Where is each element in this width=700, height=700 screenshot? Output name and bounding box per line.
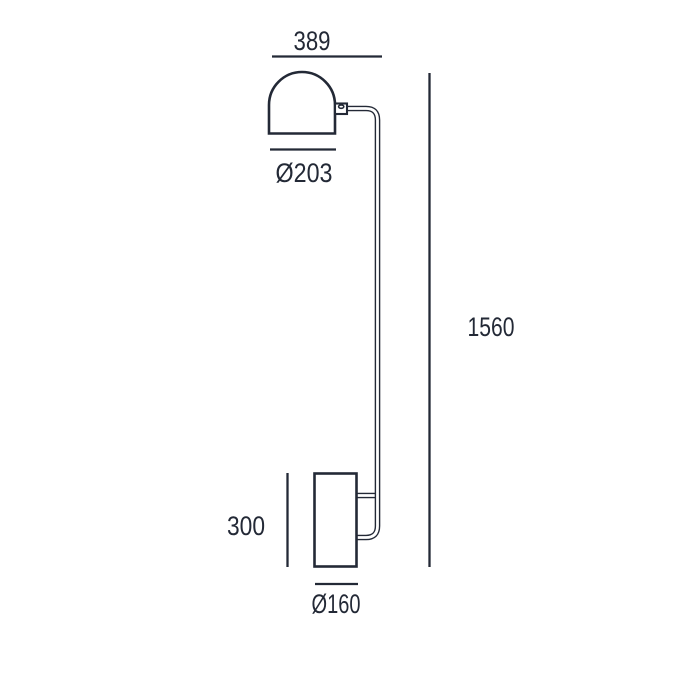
label-base-height: 300	[227, 511, 265, 541]
dimension-diagram: 389 Ø203 1560 300 Ø160	[0, 0, 700, 700]
lamp-shade	[269, 72, 335, 134]
label-base-diameter: Ø160	[312, 589, 361, 619]
label-shade-diameter: Ø203	[276, 158, 333, 188]
label-top-width: 389	[294, 26, 331, 56]
lamp-artwork	[269, 72, 378, 567]
label-total-height: 1560	[468, 312, 515, 342]
floor-lamp-drawing: 389 Ø203 1560 300 Ø160	[0, 0, 700, 700]
lamp-base	[315, 474, 357, 567]
